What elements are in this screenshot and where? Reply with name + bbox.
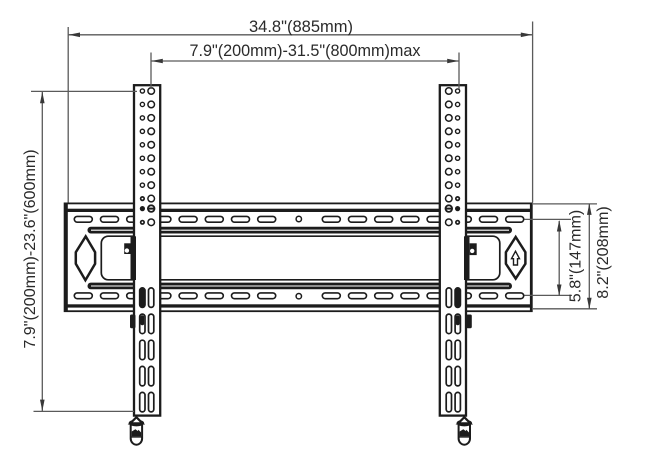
svg-text:7.9"(200mm)-31.5"(800mm)max: 7.9"(200mm)-31.5"(800mm)max (190, 42, 421, 60)
svg-text:5.8"(147mm): 5.8"(147mm) (567, 210, 585, 302)
svg-text:34.8"(885mm): 34.8"(885mm) (249, 18, 353, 36)
svg-text:8.2"(208mm): 8.2"(208mm) (594, 206, 612, 298)
svg-text:7.9"(200mm)-23.6"(600mm): 7.9"(200mm)-23.6"(600mm) (21, 149, 39, 348)
